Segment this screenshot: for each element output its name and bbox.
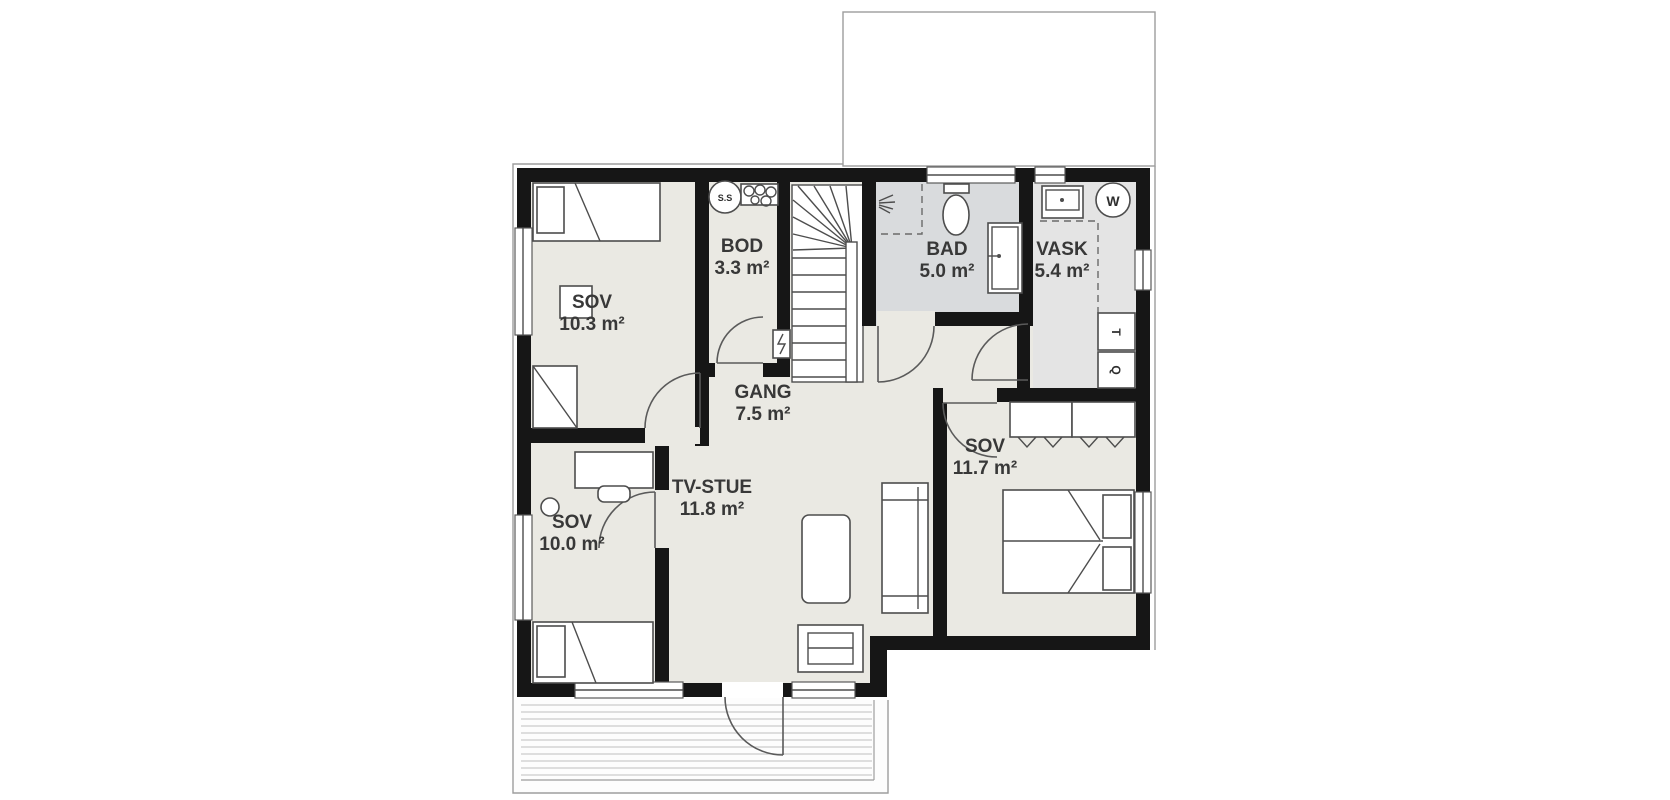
wall-bad-left bbox=[862, 182, 876, 326]
wall-sov3-right-b bbox=[655, 548, 669, 697]
bed-sov-10-3 bbox=[533, 183, 660, 241]
floor-plan-page: S.S bbox=[0, 0, 1670, 800]
room-label-gang: GANG 7.5 m² bbox=[735, 382, 792, 425]
wall-exterior-bottom-right bbox=[870, 636, 1150, 650]
svg-text:11.7 m²: 11.7 m² bbox=[953, 458, 1017, 479]
wall-sov1-bottom bbox=[531, 428, 645, 443]
svg-text:BOD: BOD bbox=[721, 236, 763, 257]
floor-cutout bbox=[870, 650, 1170, 700]
window-sov3-left bbox=[515, 515, 532, 620]
window-vask-top bbox=[1035, 167, 1065, 183]
sofa bbox=[882, 483, 928, 613]
stair-handrail bbox=[846, 242, 857, 382]
pillow bbox=[1103, 495, 1131, 538]
electrical-box bbox=[773, 330, 790, 358]
wall-sov2-left bbox=[933, 388, 947, 650]
svg-text:11.8 m²: 11.8 m² bbox=[680, 499, 744, 520]
room-label-bod: BOD 3.3 m² bbox=[715, 236, 770, 279]
shower-cabinet bbox=[988, 223, 1022, 293]
window-bad-top bbox=[927, 167, 1015, 183]
wall-sov3-right-a bbox=[655, 446, 669, 490]
appliance-q: Q bbox=[1098, 352, 1135, 388]
coffee-table bbox=[802, 515, 850, 603]
wall-step bbox=[870, 636, 887, 697]
staircase bbox=[792, 185, 863, 382]
upper-roof-outline bbox=[843, 12, 1155, 166]
water-heater-label: W bbox=[1106, 193, 1120, 209]
window-sov3-bottom bbox=[575, 682, 683, 698]
svg-text:GANG: GANG bbox=[735, 382, 792, 403]
room-label-bad: BAD 5.0 m² bbox=[920, 239, 975, 282]
desk-chair bbox=[598, 486, 630, 502]
svg-text:5.4 m²: 5.4 m² bbox=[1035, 261, 1090, 282]
window-sov1-left bbox=[515, 228, 532, 335]
svg-text:5.0 m²: 5.0 m² bbox=[920, 261, 975, 282]
wall-bad-bottom bbox=[935, 312, 1033, 326]
floor-plan-drawing: S.S bbox=[0, 0, 1670, 800]
pillow bbox=[1103, 547, 1131, 590]
svg-text:BAD: BAD bbox=[926, 239, 967, 260]
svg-text:3.3 m²: 3.3 m² bbox=[715, 258, 770, 279]
pillow bbox=[537, 626, 565, 677]
wall-bod-bottom-a bbox=[709, 363, 715, 377]
svg-text:10.3 m²: 10.3 m² bbox=[559, 314, 624, 335]
wardrobe-sov-10-3 bbox=[533, 366, 577, 428]
wall-sov2-top-b bbox=[997, 388, 1150, 402]
window-sov2-right bbox=[1135, 492, 1151, 593]
pillow bbox=[537, 187, 564, 233]
svg-text:7.5 m²: 7.5 m² bbox=[736, 404, 791, 425]
room-label-vask: VASK 5.4 m² bbox=[1035, 239, 1090, 282]
tv-stand bbox=[798, 625, 863, 672]
svg-text:SOV: SOV bbox=[552, 512, 592, 533]
appliance-q-label: Q bbox=[1109, 365, 1123, 374]
toilet bbox=[943, 184, 969, 235]
fusebox-marker: S.S bbox=[709, 181, 741, 213]
water-heater: W bbox=[1096, 183, 1130, 217]
appliance-t: T bbox=[1098, 313, 1135, 350]
desk-sov-10-0 bbox=[575, 452, 653, 488]
wall-sov1-bod bbox=[695, 182, 709, 446]
terrace-deck-boards bbox=[521, 700, 874, 780]
room-label-tv-stue: TV-STUE 11.8 m² bbox=[672, 477, 752, 520]
laundry-sink bbox=[1042, 186, 1083, 218]
svg-text:SOV: SOV bbox=[965, 436, 1005, 457]
bed-sov-10-0 bbox=[533, 622, 653, 683]
window-vask-right bbox=[1135, 250, 1151, 290]
window-tvstue-bottom bbox=[792, 682, 855, 698]
fusebox-label: S.S bbox=[718, 193, 733, 203]
ventilation-unit bbox=[741, 184, 778, 206]
svg-text:SOV: SOV bbox=[572, 292, 612, 313]
appliance-t-label: T bbox=[1109, 328, 1123, 336]
wall-bod-bottom-b bbox=[763, 363, 790, 377]
svg-text:10.0 m²: 10.0 m² bbox=[539, 534, 604, 555]
svg-text:TV-STUE: TV-STUE bbox=[672, 477, 752, 498]
double-bed-sov-11-7 bbox=[1003, 490, 1134, 593]
terrace bbox=[514, 698, 887, 792]
svg-text:VASK: VASK bbox=[1036, 239, 1088, 260]
